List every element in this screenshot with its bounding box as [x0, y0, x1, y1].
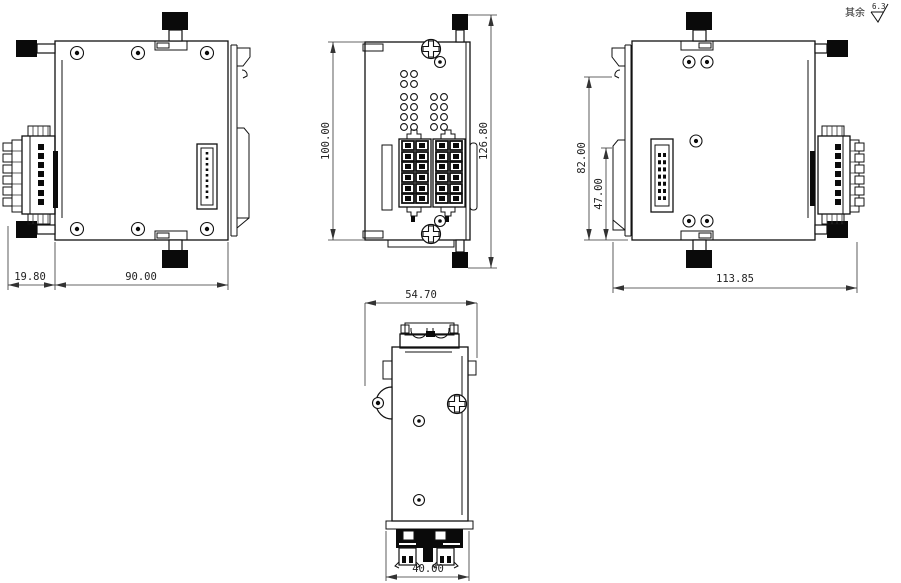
side-recess	[382, 145, 392, 210]
base-plate	[386, 521, 473, 529]
dim-label-82-00: 82.00	[576, 142, 588, 174]
view-bottom: 54.70 40.00	[365, 289, 477, 581]
dim-label-90-00: 90.00	[125, 271, 157, 283]
mount-tab-top	[155, 41, 187, 50]
screw-icon	[71, 223, 84, 236]
front-view-terminal-block-right	[433, 130, 465, 222]
roughness-value: 6.3	[872, 2, 886, 11]
knob-stem	[693, 30, 706, 41]
screw-icon	[435, 216, 446, 227]
terminal-center-tab	[423, 548, 433, 562]
connector-slot-shadow	[810, 151, 815, 206]
screw-icon	[701, 56, 713, 68]
din-clip-edge	[470, 143, 477, 210]
dim-label-113-85: 113.85	[716, 273, 754, 285]
screw-icon	[71, 47, 84, 60]
knob-stem	[815, 44, 827, 53]
din-hook-lower	[613, 140, 625, 230]
view-right-side: 82.00 47.00 113.85	[576, 12, 864, 293]
dim-label-126-80: 126.80	[478, 122, 490, 160]
screw-icon	[435, 57, 446, 68]
mount-tab-bottom	[155, 231, 187, 240]
knob-bottom	[162, 250, 188, 268]
knob-stem	[693, 240, 706, 251]
dim-label-47-00: 47.00	[593, 178, 605, 210]
right-view-internal-connector	[651, 139, 673, 212]
phillips-screw-icon	[422, 40, 441, 59]
screw-icon	[414, 416, 425, 427]
knob-stem	[37, 225, 55, 234]
base-strip	[388, 240, 454, 247]
screw-icon	[683, 56, 695, 68]
din-hook-lower	[237, 128, 249, 218]
left-view-side-connector	[3, 126, 55, 224]
side-bump	[468, 361, 476, 375]
dim-label-100-00: 100.00	[320, 122, 332, 160]
dim-label-40-00: 40.00	[412, 563, 444, 575]
view-front: 100.00 126.80	[320, 14, 497, 268]
engineering-drawing-page: 19.80 90.00	[0, 0, 901, 583]
right-view-side-connector	[818, 126, 864, 224]
knob-top	[686, 12, 712, 30]
knob-stem	[815, 225, 827, 234]
surface-finish-note: 其余 6.3	[845, 2, 888, 22]
mount-tab-top	[681, 41, 713, 50]
screw-icon	[690, 135, 702, 147]
view-left-side: 19.80 90.00	[3, 12, 250, 290]
right-view-body	[632, 41, 815, 240]
mount-tab-bottom	[681, 231, 713, 240]
drawing-canvas: 19.80 90.00	[0, 0, 901, 583]
bottom-view-din-clip	[400, 323, 459, 348]
left-view-dimensions: 19.80 90.00	[8, 226, 228, 290]
note-text: 其余	[845, 6, 865, 19]
left-view-backplane-connector	[197, 144, 217, 209]
screw-icon	[132, 223, 145, 236]
knob-stem	[169, 30, 182, 41]
right-view-din-rail	[612, 45, 631, 236]
din-hook-top	[612, 48, 625, 66]
left-view-body	[53, 41, 228, 240]
knob-top	[162, 12, 188, 30]
phillips-screw-icon	[422, 225, 441, 244]
knob-left-top	[16, 40, 37, 57]
knob-stem	[37, 44, 55, 53]
left-view-screws	[71, 47, 214, 236]
screw-icon	[201, 223, 214, 236]
screw-icon	[201, 47, 214, 60]
mount-tab-bottom	[363, 231, 383, 238]
knob-right-top	[827, 40, 848, 57]
din-hook-top	[237, 48, 250, 66]
screw-icon	[132, 47, 145, 60]
front-view-led-panel	[401, 71, 448, 131]
bottom-view-body	[373, 347, 477, 529]
side-tab	[383, 361, 392, 379]
screw-icon	[701, 215, 713, 227]
mount-tab-top	[363, 44, 383, 51]
knob-bottom	[686, 250, 712, 268]
screw-icon	[414, 495, 425, 506]
knob-stem	[456, 240, 464, 252]
phillips-screw-icon	[448, 395, 467, 414]
knob-stem	[169, 240, 182, 251]
front-view-terminal-block-left	[399, 130, 431, 222]
left-view-din-rail	[231, 45, 250, 236]
screw-icon	[683, 215, 695, 227]
dim-label-19-80: 19.80	[14, 271, 46, 283]
knob-top	[452, 14, 468, 30]
knob-bottom	[452, 252, 468, 268]
dim-label-54-70: 54.70	[405, 289, 437, 301]
right-view-screws	[683, 56, 713, 227]
knob-stem	[456, 30, 464, 42]
